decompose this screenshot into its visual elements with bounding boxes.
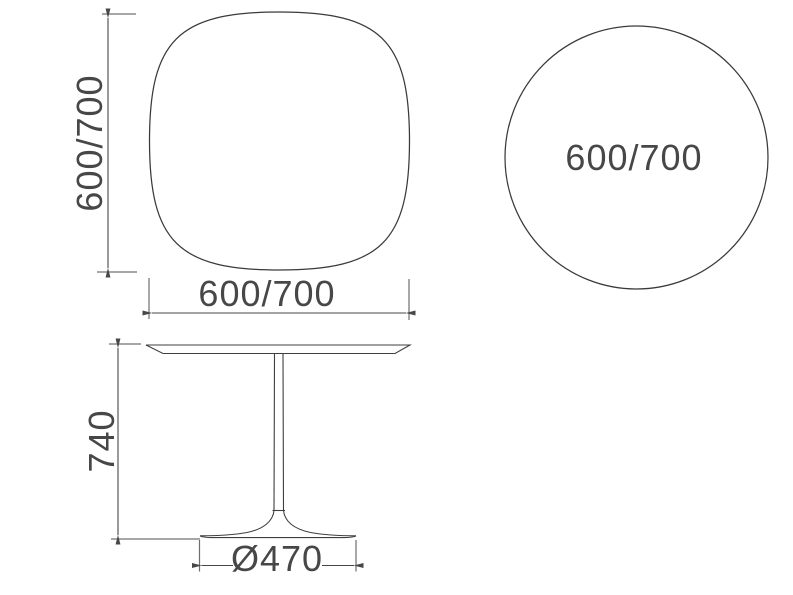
square-width-dimension: 600/700	[149, 273, 409, 320]
table-height-label: 740	[81, 409, 122, 472]
side-elevation-view: 740 Ø470	[81, 344, 410, 579]
square-height-label: 600/700	[69, 74, 110, 211]
technical-drawing-canvas: 600/700 600/700 600/700	[0, 0, 793, 595]
square-top-view: 600/700 600/700	[69, 12, 410, 320]
pedestal-column-right-edge	[283, 354, 284, 511]
pedestal-base-right-flare	[284, 511, 357, 536]
round-diameter-label: 600/700	[565, 137, 702, 178]
square-tabletop-outline	[150, 12, 410, 270]
tabletop-side-outline	[146, 345, 410, 354]
table-height-dimension: 740	[81, 344, 200, 539]
table-dimension-drawing: 600/700 600/700 600/700	[0, 0, 793, 595]
base-diameter-dimension: Ø470	[200, 538, 357, 579]
square-height-dimension: 600/700	[69, 14, 137, 272]
base-diameter-label: Ø470	[231, 538, 323, 579]
square-width-label: 600/700	[198, 273, 335, 314]
pedestal-column-left-edge	[274, 354, 275, 511]
pedestal-base-left-flare	[200, 511, 274, 536]
round-top-view: 600/700	[505, 26, 768, 289]
